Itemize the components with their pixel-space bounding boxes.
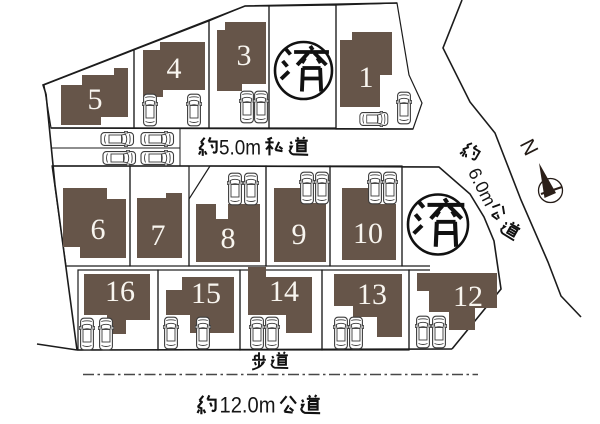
svg-text:5.0m: 5.0m — [219, 137, 261, 160]
svg-text:16: 16 — [105, 275, 135, 308]
svg-text:6: 6 — [91, 213, 106, 246]
svg-text:14: 14 — [269, 275, 299, 308]
svg-text:12: 12 — [453, 280, 483, 313]
svg-text:1: 1 — [359, 61, 374, 94]
svg-text:4: 4 — [167, 52, 182, 85]
svg-text:5: 5 — [88, 83, 103, 116]
svg-text:13: 13 — [357, 278, 387, 311]
svg-text:15: 15 — [191, 277, 221, 310]
svg-text:7: 7 — [151, 219, 166, 252]
svg-text:10: 10 — [353, 217, 383, 250]
svg-text:12.0m: 12.0m — [220, 393, 276, 418]
svg-text:8: 8 — [221, 222, 236, 255]
svg-text:9: 9 — [292, 218, 307, 251]
svg-text:3: 3 — [237, 39, 252, 72]
